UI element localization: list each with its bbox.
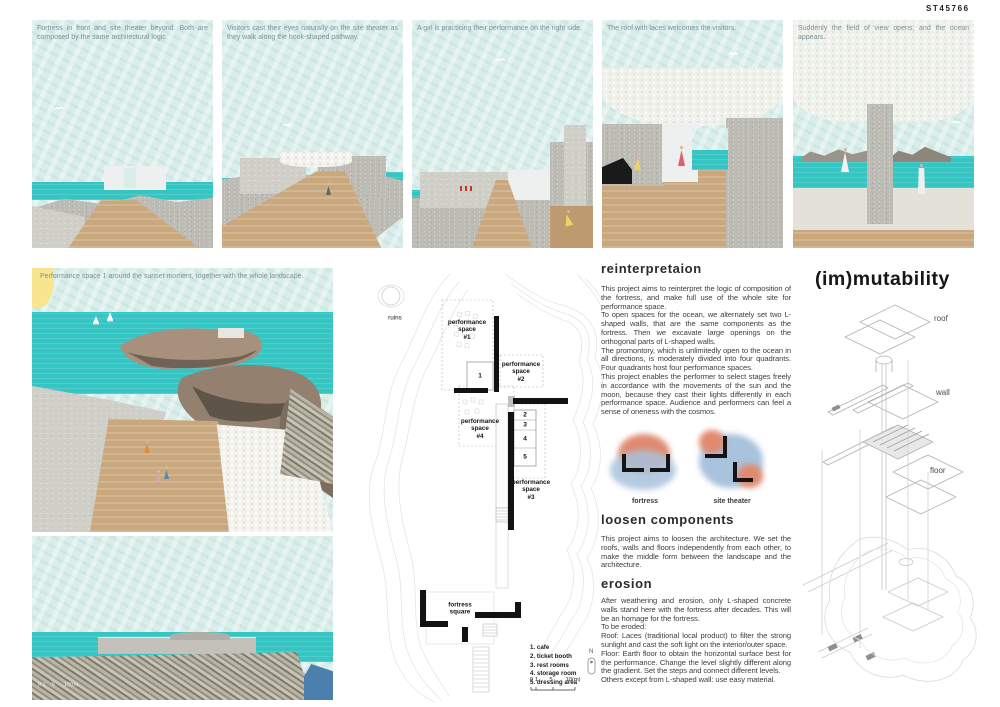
section-scale-note: 0 1 5 10(m) — [38, 682, 78, 688]
heading-reinterpretation: reinterpretaion — [601, 261, 791, 276]
viewer-figure — [917, 164, 926, 194]
bird-icon — [494, 50, 506, 68]
l-wall-lower-icon — [733, 462, 753, 482]
bird-icon — [951, 112, 961, 130]
plan-label-ruins: ruins — [388, 314, 402, 321]
hero-figure-blue — [164, 466, 169, 479]
exploded-axonometric: roof wall floor — [798, 300, 993, 702]
section-blue-rock — [304, 664, 333, 700]
plan-room-4: 4 — [523, 436, 527, 443]
panel2-caption: Visitors cast their eyes naturally on th… — [227, 24, 398, 42]
site-plan: ruins performance space #1 performance s… — [355, 272, 605, 702]
plan-room-2: 2 — [523, 412, 527, 419]
section-buildings — [98, 638, 256, 654]
pianist-figure — [634, 154, 641, 170]
panel-ocean-view: Suddenly the field of view opens, and th… — [793, 20, 974, 248]
body-reinterpretation: This project aims to reinterpret the log… — [601, 285, 791, 417]
dancing-girl-figure — [564, 210, 572, 226]
plan-scale-bar: 0 1 5 10(m) — [530, 677, 581, 683]
panel1-theater-opening — [124, 168, 136, 188]
panel-pathway-view: Visitors cast their eyes naturally on th… — [222, 20, 403, 248]
panel5-caption: Suddenly the field of view opens, and th… — [798, 24, 969, 42]
panel-practice-view: A girl is practicing their performance o… — [412, 20, 593, 248]
hero-caption: Performance space 1 around the sunset mo… — [40, 272, 323, 281]
cafe-chairs — [460, 186, 474, 191]
plan-label-space2: performance space #2 — [502, 361, 540, 383]
axon-drawing — [798, 300, 993, 702]
axon-label-floor: floor — [930, 466, 946, 475]
panel4-caption: The roof with laces welcomes the visitor… — [607, 24, 778, 33]
project-title: (im)mutability — [815, 268, 950, 291]
plan-label-space3: performance space #3 — [512, 479, 550, 501]
fortress-diagram — [610, 434, 680, 494]
presentation-board: ST45766 Fortress in front and site theat… — [0, 0, 1000, 707]
hero-figure-orange — [144, 440, 150, 453]
l-wall-left-icon — [622, 454, 644, 472]
bird-icon — [282, 115, 292, 133]
plan-room-3: 3 — [523, 422, 527, 429]
legend-rest-rooms: 3. rest rooms — [530, 662, 592, 671]
performer-figure — [678, 146, 685, 166]
hero-perspective: Performance space 1 around the sunset mo… — [32, 268, 333, 532]
body-loosen-components: This project aims to loosen the architec… — [601, 535, 791, 570]
site-theater-diagram — [697, 430, 767, 494]
panel3-theater — [508, 170, 552, 200]
legend-ticket-booth: 2. ticket booth — [530, 653, 592, 662]
board-code: ST45766 — [926, 4, 970, 13]
bird-icon — [728, 44, 739, 62]
site-theater-diagram-label: site theater — [713, 498, 750, 505]
section-hill — [170, 632, 230, 640]
panel3-caption: A girl is practicing their performance o… — [417, 24, 588, 33]
bird-icon — [54, 98, 64, 116]
l-wall-upper-icon — [705, 436, 727, 458]
panel4-opening-sea — [692, 150, 728, 170]
hero-figure-pink — [156, 470, 161, 483]
heading-loosen-components: loosen components — [601, 512, 791, 527]
plan-room-1: 1 — [478, 373, 482, 380]
fortress-diagram-label: fortress — [632, 498, 658, 505]
north-arrow: N — [589, 649, 593, 655]
plan-label-fortress-square: fortress square — [448, 602, 471, 617]
body-erosion: After weathering and erosion, only L-sha… — [601, 597, 791, 685]
plan-label-space1: performance space #1 — [448, 319, 486, 341]
panel2-lace-roof — [280, 152, 352, 167]
panel-lace-roof-view: The roof with laces welcomes the visitor… — [602, 20, 783, 248]
panel4-wall-right — [726, 118, 783, 248]
axon-label-wall: wall — [936, 388, 950, 397]
heading-erosion: erosion — [601, 576, 791, 591]
plan-room-5: 5 — [523, 454, 527, 461]
woman-figure — [841, 148, 849, 172]
plan-label-space4: performance space #4 — [461, 418, 499, 440]
axon-label-roof: roof — [934, 314, 948, 323]
panel5-column — [867, 104, 893, 224]
panel5-floor-strip — [793, 230, 974, 248]
section-elevation-view: 0 1 5 10(m) — [32, 536, 333, 700]
panel4-opening-sky — [692, 128, 728, 152]
panel1-caption: Fortress in front and site theater beyon… — [37, 24, 208, 42]
panel5-island-right — [889, 146, 951, 162]
walking-figure — [326, 182, 331, 195]
legend-cafe: 1. cafe — [530, 644, 592, 653]
l-wall-right-icon — [650, 454, 670, 472]
panel-fortress-view: Fortress in front and site theater beyon… — [32, 20, 213, 248]
